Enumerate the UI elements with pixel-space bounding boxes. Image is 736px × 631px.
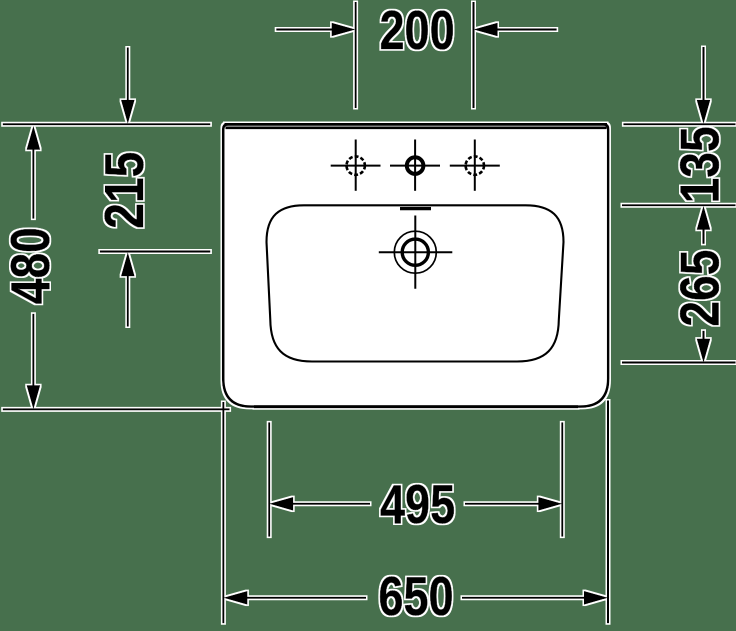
svg-text:135: 135 bbox=[669, 126, 731, 203]
svg-text:495: 495 bbox=[380, 472, 455, 534]
svg-text:265: 265 bbox=[669, 250, 731, 327]
svg-text:200: 200 bbox=[379, 0, 454, 61]
svg-text:650: 650 bbox=[378, 565, 453, 627]
svg-text:215: 215 bbox=[93, 152, 155, 229]
svg-text:480: 480 bbox=[0, 227, 61, 304]
